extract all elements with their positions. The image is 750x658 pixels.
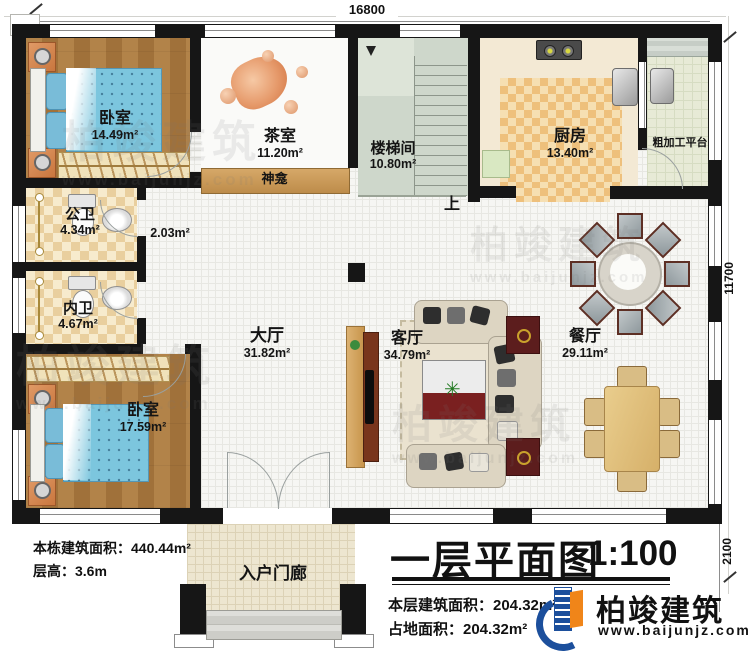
floor-area: 本层建筑面积：204.32m² [388,594,557,615]
room-name: 粗加工平台 [642,137,718,150]
bed-headboard [30,68,46,152]
room-label-stairwell: 楼梯间 10.80m² [346,140,440,172]
stove-icon [536,40,582,60]
shower-rail-end [35,277,44,286]
room-label-kitchen: 厨房 13.40m² [515,128,625,161]
toilet-icon [68,276,96,290]
window [638,62,647,128]
window [40,508,160,524]
window [50,24,155,38]
shower-rail-end [35,193,44,202]
sofa-pillow [469,305,491,326]
window [532,508,666,524]
coffee-table: ✳ [422,360,486,420]
room-area: 34.79m² [352,348,462,362]
bed-headboard [30,404,45,482]
stairs-up-label: 上 [440,196,464,214]
corner-rug [506,438,540,476]
window [708,420,722,504]
round-table-top [610,254,646,290]
sofa-pillow [419,453,437,470]
room-label-public-bath: 公卫 4.34m² [35,206,125,238]
medallion-icon [517,451,531,465]
room-area: 10.80m² [346,157,440,171]
room-name: 公卫 [35,206,125,223]
chair [658,398,680,426]
chair [584,398,606,426]
shower-rail-end [35,247,44,256]
window [708,206,722,266]
lamp-icon [34,154,51,171]
room-label-corridor: 2.03m² [144,226,196,240]
kitchen-sink-icon [612,68,638,106]
room-name: 大厅 [212,326,322,346]
room-area: 14.49m² [60,128,170,142]
plant-icon: ✳ [444,380,461,400]
room-label-dining-room: 餐厅 29.11m² [530,328,640,361]
room-name: 内卫 [33,300,123,317]
floor-height: 层高：3.6m [33,561,107,581]
wall [137,188,146,200]
roof-outline-right [728,16,729,594]
room-name: 卧室 [88,402,198,420]
window [12,278,26,333]
chair [617,470,647,492]
tea-room-art-dot [284,100,298,114]
wall [137,318,146,344]
window [708,322,722,380]
room-area: 13.40m² [515,146,625,160]
medallion-icon [517,329,531,343]
room-label-living-room: 客厅 34.79m² [352,330,462,363]
sofa-pillow [497,369,516,387]
entry-door-leaf [227,452,228,508]
footprint-area: 占地面积：204.32m² [388,618,527,639]
bed-pillow [46,73,68,110]
window [400,24,460,38]
wall [137,236,146,282]
title-underline [392,577,670,581]
room-label-hall: 大厅 31.82m² [212,326,322,360]
wall [26,178,201,188]
break-mark-bottom-right [723,571,737,583]
sofa-pillow [495,395,514,413]
wall [12,344,143,354]
chair [584,430,606,458]
stair-direction-arrow [366,46,376,56]
break-mark-top-right [723,31,737,43]
sofa-pillow [447,307,465,324]
wall [190,38,201,132]
sofa-pillow [469,453,489,472]
bed-pillow [45,444,65,479]
window [12,430,26,500]
title-underline-thin [392,584,670,585]
stair-treads [414,56,467,196]
room-area: 29.11m² [530,346,640,360]
room-area: 17.59m² [88,420,198,434]
prep-sink-icon [650,68,674,104]
burner-icon [544,45,556,57]
room-area: 11.20m² [225,146,335,160]
room-label-shrine: 神龛 [201,172,348,187]
room-name: 卧室 [60,110,170,128]
kitchen-door-tile [516,188,610,202]
plan-scale: 1:100 [588,534,678,574]
room-label-entry-porch: 入户门廊 [218,564,328,584]
room-label-bedroom2: 卧室 17.59m² [88,402,198,435]
lamp-icon [34,482,51,499]
porch-steps [206,610,342,640]
dimension-top-width: 16800 [336,2,398,17]
wall [480,186,516,198]
cutting-board [482,150,510,178]
bed-sheet [63,404,91,480]
wall [185,344,201,354]
chair [617,213,643,239]
room-area: 4.34m² [35,223,125,237]
wall [638,38,647,62]
window [205,24,335,38]
nightstand [28,148,56,178]
bed-pillow [45,408,65,443]
logo-building-orange [570,590,583,628]
room-area: 31.82m² [212,346,322,360]
room-area: 4.67m² [33,317,123,331]
window [12,206,26,262]
room-name: 入户门廊 [218,564,328,584]
room-label-bedroom1: 卧室 14.49m² [60,110,170,143]
column [348,263,365,282]
brand-website: www.baijunjz.com [598,622,750,638]
total-building-area: 本栋建筑面积：440.44m² [33,538,191,558]
room-name: 茶室 [225,128,335,146]
tv-icon [365,370,374,424]
chair [664,261,690,287]
chair [658,430,680,458]
tea-room-art-dot [220,88,236,104]
room-area: 2.03m² [144,226,196,240]
tea-room-art-dot [262,50,274,62]
tea-room-art-dot [296,66,308,78]
dimension-right-depth: 11700 [722,262,736,295]
wall [12,262,146,271]
room-name: 楼梯间 [346,140,440,157]
dimension-line-top [20,21,710,22]
sofa-pillow [423,307,441,324]
room-name: 厨房 [515,128,625,146]
room-label-inner-bath: 内卫 4.67m² [33,300,123,332]
room-label-prep-platform: 粗加工平台 [642,137,718,150]
brand-logo-icon [534,583,592,641]
burner-icon [562,45,574,57]
room-name: 客厅 [352,330,462,348]
lamp-icon [34,48,51,65]
shower-rail-end [35,331,44,340]
prep-platform-steps [642,36,710,57]
entry-door-leaf [329,452,330,508]
chair [617,366,647,388]
porch-column [180,584,206,636]
dimension-porch-depth: 2100 [720,538,734,565]
room-name: 神龛 [201,172,348,187]
room-name: 餐厅 [530,328,640,346]
chair [570,261,596,287]
porch-column [340,584,366,636]
sofa-pillow [444,452,465,472]
window [390,508,493,524]
sofa [406,444,506,488]
wall [468,38,480,202]
room-label-tea-room: 茶室 11.20m² [225,128,335,161]
dining-table [604,386,660,472]
